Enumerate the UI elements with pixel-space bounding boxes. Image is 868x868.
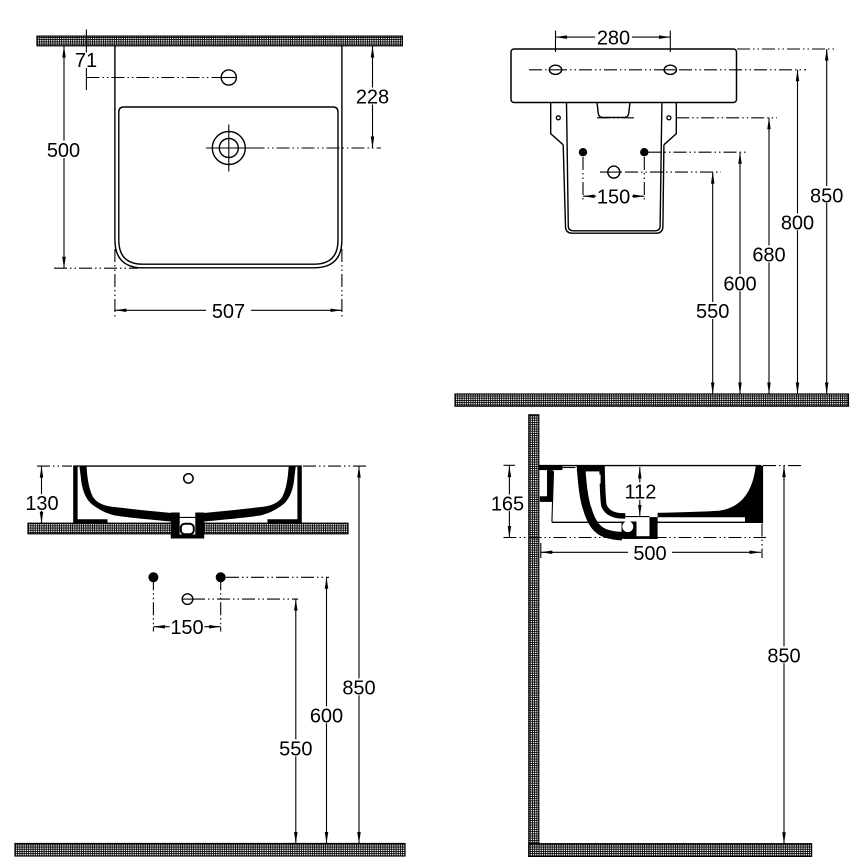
- svg-text:850: 850: [342, 678, 375, 700]
- svg-text:71: 71: [75, 50, 97, 72]
- svg-text:850: 850: [767, 646, 800, 668]
- svg-text:850: 850: [810, 185, 843, 207]
- svg-text:150: 150: [597, 187, 630, 209]
- svg-text:550: 550: [696, 301, 729, 323]
- svg-text:800: 800: [781, 212, 814, 234]
- svg-text:680: 680: [752, 245, 785, 267]
- svg-text:600: 600: [310, 706, 343, 728]
- svg-text:550: 550: [279, 739, 312, 761]
- svg-text:600: 600: [723, 274, 756, 296]
- svg-text:500: 500: [47, 140, 80, 162]
- svg-text:150: 150: [170, 617, 203, 639]
- svg-text:228: 228: [356, 87, 389, 109]
- svg-text:500: 500: [633, 543, 666, 565]
- svg-text:165: 165: [491, 493, 524, 515]
- svg-text:507: 507: [212, 301, 245, 323]
- svg-text:130: 130: [25, 493, 58, 515]
- svg-text:112: 112: [625, 481, 657, 503]
- svg-text:280: 280: [597, 27, 630, 49]
